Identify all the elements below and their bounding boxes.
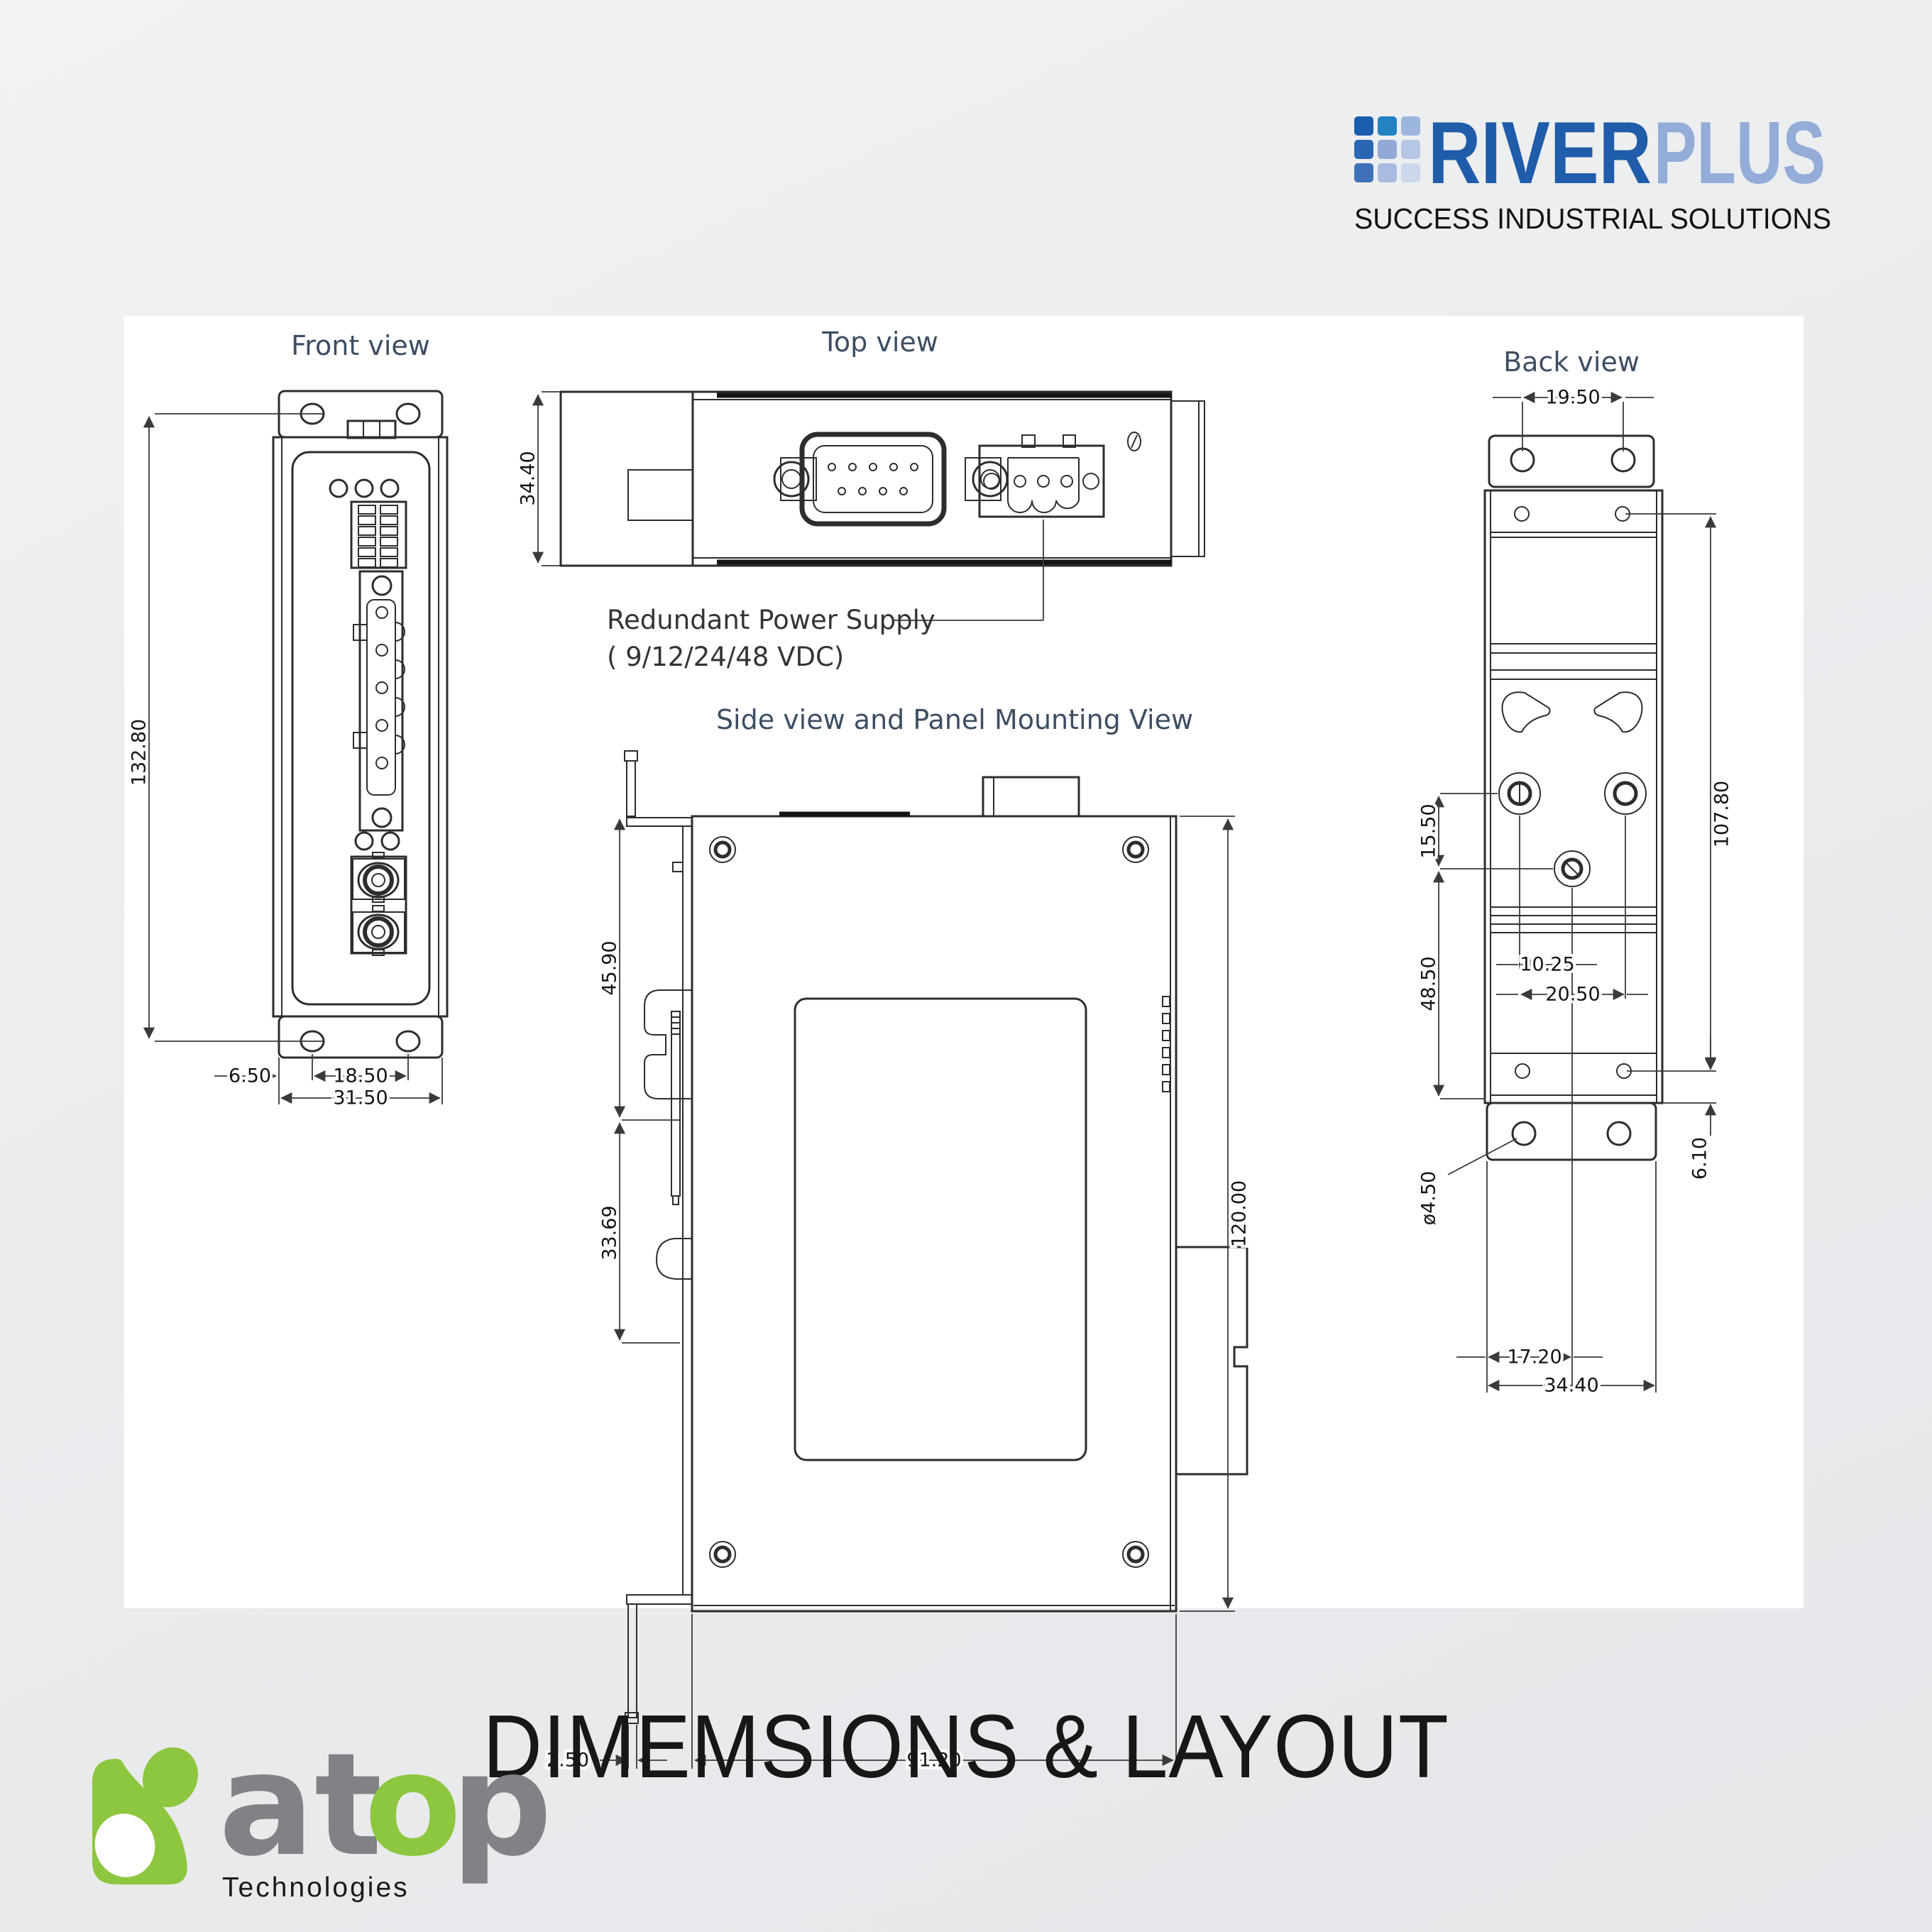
atop-tagline: Technologies — [222, 1872, 410, 1903]
top-view-title: Top view — [821, 326, 938, 358]
front-view-title: Front view — [291, 330, 430, 361]
dim-label-back-center-offset: 17.20 — [1507, 1346, 1561, 1368]
dim-label-front-height: 132.80 — [128, 719, 150, 786]
dim-label-front-edge-offset: 6.50 — [229, 1065, 271, 1087]
page: RIVER PLUS SUCCESS INDUSTRIAL SOLUTIONS … — [0, 0, 1932, 1932]
side-view-title: Side view and Panel Mounting View — [716, 704, 1193, 735]
dim-label-top-depth: 34.40 — [517, 451, 539, 505]
dim-label-back-width: 34.40 — [1544, 1375, 1598, 1397]
dimension-drawing: Front view — [0, 0, 1932, 1932]
dim-label-back-screw-spacing: 20.50 — [1545, 984, 1600, 1006]
dim-label-back-top-spacing: 19.50 — [1545, 387, 1600, 409]
annotation-power-line2: ( 9/12/24/48 VDC) — [607, 642, 844, 672]
dim-label-back-bottom-gap: 6.10 — [1689, 1137, 1711, 1180]
back-view-title: Back view — [1503, 346, 1640, 378]
atop-word-p: p — [451, 1732, 552, 1888]
dim-label-back-lower-section: 48.50 — [1418, 956, 1440, 1011]
dim-label-back-half-spacing: 10.25 — [1520, 954, 1574, 976]
dim-label-front-width: 31.50 — [333, 1087, 388, 1109]
atop-word-at: at — [219, 1732, 383, 1888]
dim-label-back-mount-height: 107.80 — [1711, 781, 1733, 847]
dim-label-side-lower: 33.69 — [599, 1205, 621, 1260]
atop-icon — [87, 1738, 207, 1885]
atop-logo: at o p Technologies — [84, 1732, 581, 1923]
dim-label-side-height: 120.00 — [1229, 1180, 1251, 1247]
dim-label-front-hole-spacing: 18.50 — [333, 1065, 388, 1087]
atop-word-o: o — [364, 1732, 461, 1888]
dim-label-side-upper: 45.90 — [599, 940, 621, 995]
dim-label-back-screw-offset: 15.50 — [1418, 803, 1440, 858]
dim-label-back-hole-diameter: ø4.50 — [1418, 1171, 1440, 1226]
annotation-power-line1: Redundant Power Supply — [607, 605, 935, 635]
